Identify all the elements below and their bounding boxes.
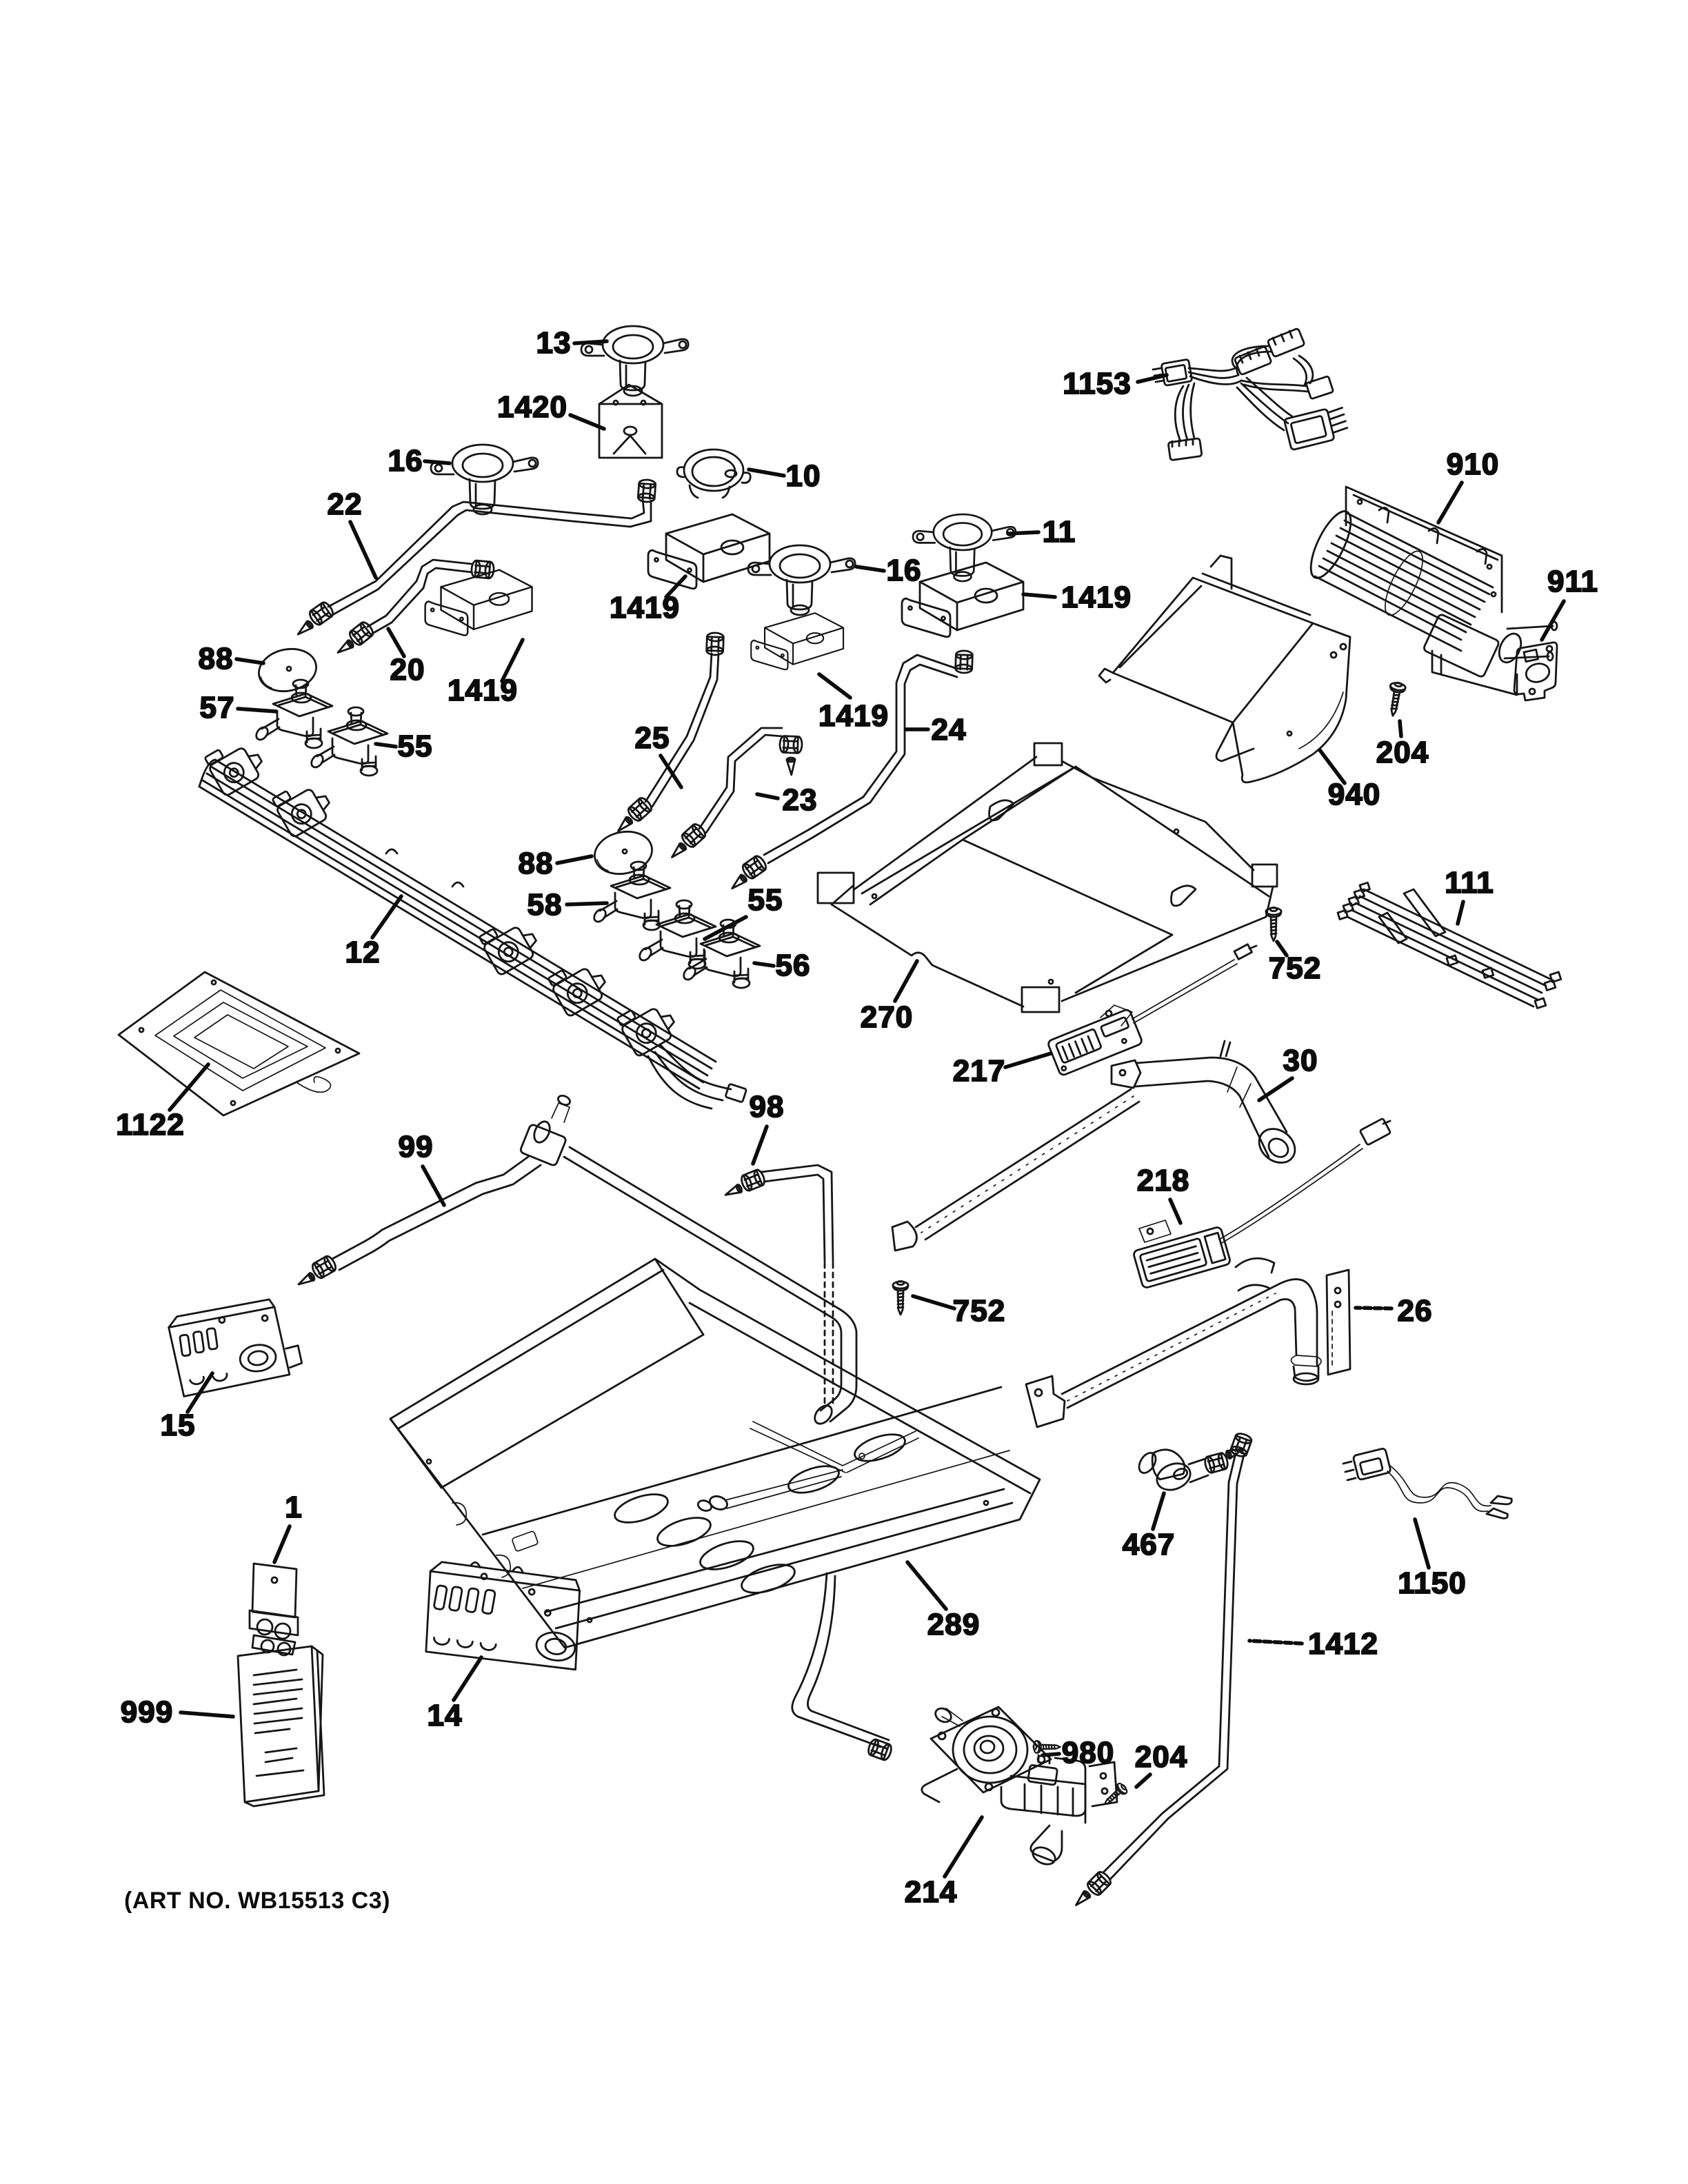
svg-text:58: 58 [527,888,563,922]
svg-text:911: 911 [1547,565,1598,598]
svg-text:16: 16 [887,554,922,587]
svg-text:26: 26 [1398,1294,1433,1328]
svg-text:204: 204 [1135,1740,1187,1774]
svg-text:204: 204 [1376,736,1429,769]
svg-text:23: 23 [783,783,818,817]
svg-text:752: 752 [1269,951,1321,985]
svg-text:1419: 1419 [1061,580,1132,614]
svg-text:55: 55 [398,729,433,763]
svg-text:1420: 1420 [497,390,567,424]
svg-text:1412: 1412 [1308,1627,1378,1661]
svg-text:99: 99 [399,1130,434,1164]
svg-text:25: 25 [635,721,670,755]
svg-text:20: 20 [390,653,425,687]
svg-text:15: 15 [161,1408,196,1442]
svg-text:98: 98 [750,1090,785,1124]
svg-text:980: 980 [1062,1736,1114,1770]
svg-text:1: 1 [285,1490,302,1524]
svg-text:752: 752 [953,1294,1005,1328]
svg-text:1419: 1419 [818,699,889,733]
svg-text:22: 22 [328,487,363,521]
svg-text:55: 55 [748,883,783,917]
svg-text:214: 214 [905,1875,957,1909]
svg-text:13: 13 [536,326,572,360]
svg-text:56: 56 [776,949,811,982]
svg-text:88: 88 [519,847,554,880]
svg-text:111: 111 [1445,866,1494,900]
svg-text:57: 57 [200,691,235,725]
svg-text:1150: 1150 [1398,1566,1466,1600]
svg-text:11: 11 [1043,515,1076,549]
svg-text:940: 940 [1328,778,1380,811]
svg-text:(ART NO. WB15513 C3): (ART NO. WB15513 C3) [124,1888,390,1914]
svg-text:289: 289 [927,1608,980,1641]
svg-text:218: 218 [1137,1164,1189,1197]
svg-text:30: 30 [1283,1044,1318,1078]
svg-text:217: 217 [953,1054,1005,1088]
svg-text:999: 999 [121,1695,173,1729]
svg-text:16: 16 [388,444,423,478]
svg-text:14: 14 [428,1699,463,1732]
svg-text:910: 910 [1447,447,1499,481]
svg-text:270: 270 [861,1000,913,1034]
svg-text:1153: 1153 [1063,367,1131,401]
svg-text:24: 24 [932,713,967,747]
svg-text:12: 12 [345,936,381,969]
svg-text:1419: 1419 [448,674,518,707]
svg-text:88: 88 [199,642,234,676]
svg-text:10: 10 [786,459,821,493]
svg-text:467: 467 [1123,1528,1175,1561]
svg-text:1122: 1122 [116,1108,184,1142]
